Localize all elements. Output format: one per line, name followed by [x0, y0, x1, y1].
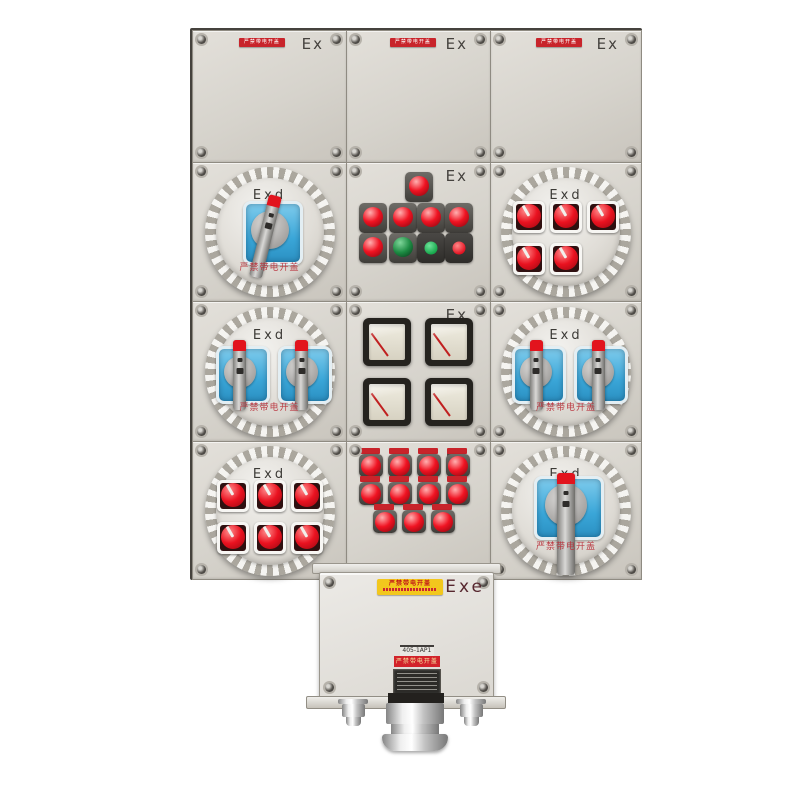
button-dome: [419, 484, 439, 504]
corner-screw-icon: [627, 565, 636, 574]
handle-dot-icon: [564, 491, 569, 495]
indicator-light-red: [405, 172, 433, 202]
switch-knob-red[interactable]: [258, 483, 282, 507]
cover-face: Exd严禁带电开盖: [512, 318, 620, 426]
flameproof-round-cover: Exd: [501, 167, 631, 297]
push-button-red[interactable]: [445, 233, 473, 263]
push-button-red[interactable]: [359, 454, 383, 477]
paddle-switch[interactable]: [254, 480, 286, 512]
handle-dot-icon: [563, 501, 570, 507]
paddle-switch[interactable]: [550, 201, 582, 233]
analog-meter: [425, 318, 473, 366]
handle-red-tab: [267, 194, 282, 208]
corner-screw-icon: [476, 306, 485, 315]
switch-pointer-icon: [596, 205, 605, 217]
ex-mark: Ex: [597, 35, 619, 53]
module-r3c3: Exd严禁带电开盖: [490, 301, 642, 442]
corner-screw-icon: [495, 287, 504, 296]
gland-hex-nut: [342, 704, 365, 717]
switch-knob-red[interactable]: [221, 483, 245, 507]
push-button-red[interactable]: [402, 510, 426, 533]
corner-screw-icon: [332, 427, 341, 436]
corner-screw-icon: [627, 167, 636, 176]
corner-screw-icon: [627, 148, 636, 157]
corner-screw-icon: [332, 148, 341, 157]
switch-pointer-icon: [522, 247, 531, 259]
switch-window: [574, 346, 628, 404]
corner-screw-icon: [351, 446, 360, 455]
switch-knob-red[interactable]: [258, 525, 282, 549]
switch-knob-red[interactable]: [554, 246, 578, 270]
gland-skirt: [382, 734, 448, 751]
cover-face: Exd: [512, 178, 620, 286]
paddle-switch[interactable]: [587, 201, 619, 233]
warning-strip: 严禁带电开盖: [239, 38, 285, 47]
handle-red-tab: [530, 340, 543, 351]
switch-pointer-icon: [299, 483, 308, 495]
paddle-switch[interactable]: [513, 243, 545, 275]
cover-warning-text: 严禁带电开盖: [512, 539, 620, 552]
light-dome: [449, 207, 469, 227]
push-button-red[interactable]: [446, 454, 470, 477]
rotary-switch-handle[interactable]: [557, 473, 575, 575]
button-dome: [404, 512, 424, 532]
corner-screw-icon: [495, 148, 504, 157]
warning-strip: 严禁带电开盖: [536, 38, 582, 47]
corner-screw-icon: [351, 167, 360, 176]
handle-dot-icon: [595, 368, 602, 374]
handle-red-tab: [233, 340, 246, 351]
handle-dot-icon: [264, 222, 272, 230]
paddle-switch[interactable]: [291, 480, 323, 512]
corner-screw-icon: [325, 578, 334, 587]
indicator-light-red: [417, 203, 445, 233]
gland-tip: [464, 717, 479, 726]
cable-gland-small: [336, 699, 370, 726]
paddle-switch[interactable]: [217, 480, 249, 512]
gland-hex-nut: [386, 703, 444, 724]
corner-screw-icon: [332, 35, 341, 44]
light-dome: [409, 176, 429, 196]
paddle-switch[interactable]: [550, 243, 582, 275]
push-button-red[interactable]: [417, 454, 441, 477]
handle-dot-icon: [236, 368, 243, 374]
corner-screw-icon: [351, 427, 360, 436]
cover-face: Exd严禁带电开盖: [216, 318, 324, 426]
analog-meter: [425, 378, 473, 426]
corner-screw-icon: [197, 306, 206, 315]
switch-knob-red[interactable]: [517, 204, 541, 228]
switch-knob-red[interactable]: [591, 204, 615, 228]
handle-dot-icon: [237, 358, 242, 362]
corner-screw-icon: [495, 427, 504, 436]
switch-pointer-icon: [225, 483, 234, 495]
cover-warning-text: 严禁带电开盖: [216, 400, 324, 413]
switch-window: [216, 346, 270, 404]
cover-warning-text: 严禁带电开盖: [512, 400, 620, 413]
corner-screw-icon: [332, 446, 341, 455]
push-button-red[interactable]: [431, 510, 455, 533]
module-r1c3: 严禁带电开盖Ex: [490, 30, 642, 163]
button-dome: [433, 512, 453, 532]
button-dome: [390, 484, 410, 504]
corner-screw-icon: [476, 427, 485, 436]
handle-red-tab: [557, 473, 575, 484]
handle-dot-icon: [596, 358, 601, 362]
button-dome: [419, 456, 439, 476]
module-r4c2: Ex: [346, 441, 491, 580]
paddle-switch[interactable]: [291, 522, 323, 554]
switch-pointer-icon: [559, 205, 568, 217]
warning-label-text: 严禁带电开盖: [377, 579, 443, 588]
gland-ring: [391, 724, 439, 734]
corner-screw-icon: [332, 167, 341, 176]
module-r2c2: Ex: [346, 162, 491, 302]
module-r2c3: Exd: [490, 162, 642, 302]
indicator-light-red: [389, 203, 417, 233]
corner-screw-icon: [495, 306, 504, 315]
button-dome: [361, 456, 381, 476]
corner-screw-icon: [627, 446, 636, 455]
switch-knob-red[interactable]: [517, 246, 541, 270]
warning-strip: 严禁带电开盖: [390, 38, 436, 47]
corner-screw-icon: [197, 35, 206, 44]
switch-knob-red[interactable]: [221, 525, 245, 549]
explosion-proof-distribution-panel: 严禁带电开盖Ex严禁带电开盖Ex严禁带电开盖ExExd严禁带电开盖ExExdEx…: [0, 0, 800, 800]
handle-dot-icon: [268, 213, 274, 218]
handle-red-tab: [592, 340, 605, 351]
corner-screw-icon: [197, 446, 206, 455]
light-dome: [363, 207, 383, 227]
flameproof-round-cover: Exd: [205, 446, 335, 576]
meter-glass: [369, 384, 405, 420]
module-r3c2: Ex: [346, 301, 491, 442]
button-dome: [393, 237, 413, 257]
terminal-box: 严禁带电开盖 Exe 405-1AP1 严禁带电开盖: [319, 572, 494, 698]
push-button-red[interactable]: [359, 482, 383, 505]
corner-screw-icon: [332, 287, 341, 296]
corner-screw-icon: [476, 148, 485, 157]
handle-dot-icon: [534, 358, 539, 362]
button-face: [425, 242, 438, 255]
push-button-red[interactable]: [446, 482, 470, 505]
switch-pointer-icon: [559, 247, 568, 259]
corner-screw-icon: [325, 683, 334, 692]
corner-screw-icon: [495, 35, 504, 44]
corner-screw-icon: [351, 287, 360, 296]
button-dome: [390, 456, 410, 476]
handle-dot-icon: [533, 368, 540, 374]
push-button-green[interactable]: [389, 233, 417, 263]
push-button-red[interactable]: [388, 454, 412, 477]
push-button-red[interactable]: [359, 233, 387, 263]
flameproof-round-cover: Exd严禁带电开盖: [501, 446, 631, 576]
cover-face: Exd严禁带电开盖: [512, 457, 620, 565]
module-r4c3: Exd严禁带电开盖: [490, 441, 642, 580]
warning-label-subtext: [383, 588, 437, 591]
corner-screw-icon: [351, 35, 360, 44]
exe-mark: Exe: [445, 577, 485, 597]
push-button-red[interactable]: [417, 482, 441, 505]
switch-pointer-icon: [262, 483, 271, 495]
ex-mark: Ex: [302, 35, 324, 53]
button-dome: [448, 484, 468, 504]
corner-screw-icon: [495, 167, 504, 176]
handle-dot-icon: [298, 368, 305, 374]
switch-pointer-icon: [225, 525, 234, 537]
handle-red-tab: [295, 340, 308, 351]
button-dome: [375, 512, 395, 532]
corner-screw-icon: [479, 683, 488, 692]
corner-screw-icon: [627, 427, 636, 436]
corner-screw-icon: [351, 306, 360, 315]
gland-hex-nut: [460, 704, 483, 717]
switch-window: [512, 346, 566, 404]
corner-screw-icon: [495, 446, 504, 455]
cable-gland-large: [382, 703, 448, 751]
switch-knob-red[interactable]: [295, 525, 319, 549]
gland-tip: [346, 717, 361, 726]
corner-screw-icon: [476, 167, 485, 176]
paddle-switch[interactable]: [217, 522, 249, 554]
module-r2c1: Exd严禁带电开盖: [192, 162, 347, 302]
switch-knob-red[interactable]: [295, 483, 319, 507]
meter-glass: [431, 384, 467, 420]
button-dome: [361, 484, 381, 504]
indicator-light-red: [445, 203, 473, 233]
flameproof-round-cover: Exd严禁带电开盖: [501, 307, 631, 437]
push-button-red[interactable]: [388, 482, 412, 505]
corner-screw-icon: [627, 306, 636, 315]
switch-pointer-icon: [262, 525, 271, 537]
nameplate: [393, 669, 441, 695]
switch-pointer-icon: [522, 205, 531, 217]
corner-screw-icon: [476, 446, 485, 455]
button-face: [453, 242, 466, 255]
switch-window: [243, 201, 303, 265]
module-r4c1: Exd: [192, 441, 347, 580]
corner-screw-icon: [197, 565, 206, 574]
switch-window: [534, 476, 604, 540]
push-button-green[interactable]: [417, 233, 445, 263]
button-dome: [448, 456, 468, 476]
corner-screw-icon: [197, 427, 206, 436]
meter-glass: [431, 324, 467, 360]
switch-window: [278, 346, 332, 404]
cover-warning-text: 严禁带电开盖: [216, 260, 324, 273]
module-r1c1: 严禁带电开盖Ex: [192, 30, 347, 163]
switch-knob-red[interactable]: [554, 204, 578, 228]
warning-label-yellow: 严禁带电开盖: [377, 579, 443, 595]
cover-face: Exd严禁带电开盖: [216, 178, 324, 286]
meter-glass: [369, 324, 405, 360]
red-warning-label: 严禁带电开盖: [394, 656, 440, 667]
corner-screw-icon: [476, 287, 485, 296]
corner-screw-icon: [197, 287, 206, 296]
button-dome: [363, 237, 383, 257]
module-r1c2: 严禁带电开盖Ex: [346, 30, 491, 163]
corner-screw-icon: [627, 287, 636, 296]
push-button-red[interactable]: [373, 510, 397, 533]
corner-screw-icon: [627, 35, 636, 44]
gland-recess: [388, 693, 444, 703]
corner-screw-icon: [332, 306, 341, 315]
light-dome: [421, 207, 441, 227]
corner-screw-icon: [351, 148, 360, 157]
cover-face: Exd: [216, 457, 324, 565]
light-dome: [393, 207, 413, 227]
ex-mark: Ex: [446, 167, 468, 185]
flameproof-round-cover: Exd严禁带电开盖: [205, 307, 335, 437]
module-r3c1: Exd严禁带电开盖: [192, 301, 347, 442]
analog-meter: [363, 378, 411, 426]
handle-dot-icon: [299, 358, 304, 362]
indicator-light-red: [359, 203, 387, 233]
model-label: 405-1AP1: [400, 645, 434, 656]
corner-screw-icon: [197, 148, 206, 157]
analog-meter: [363, 318, 411, 366]
switch-pointer-icon: [299, 525, 308, 537]
ex-mark: Ex: [446, 35, 468, 53]
paddle-switch[interactable]: [513, 201, 545, 233]
corner-screw-icon: [476, 35, 485, 44]
paddle-switch[interactable]: [254, 522, 286, 554]
flameproof-round-cover: Exd严禁带电开盖: [205, 167, 335, 297]
corner-screw-icon: [197, 167, 206, 176]
cable-gland-small: [454, 699, 488, 726]
